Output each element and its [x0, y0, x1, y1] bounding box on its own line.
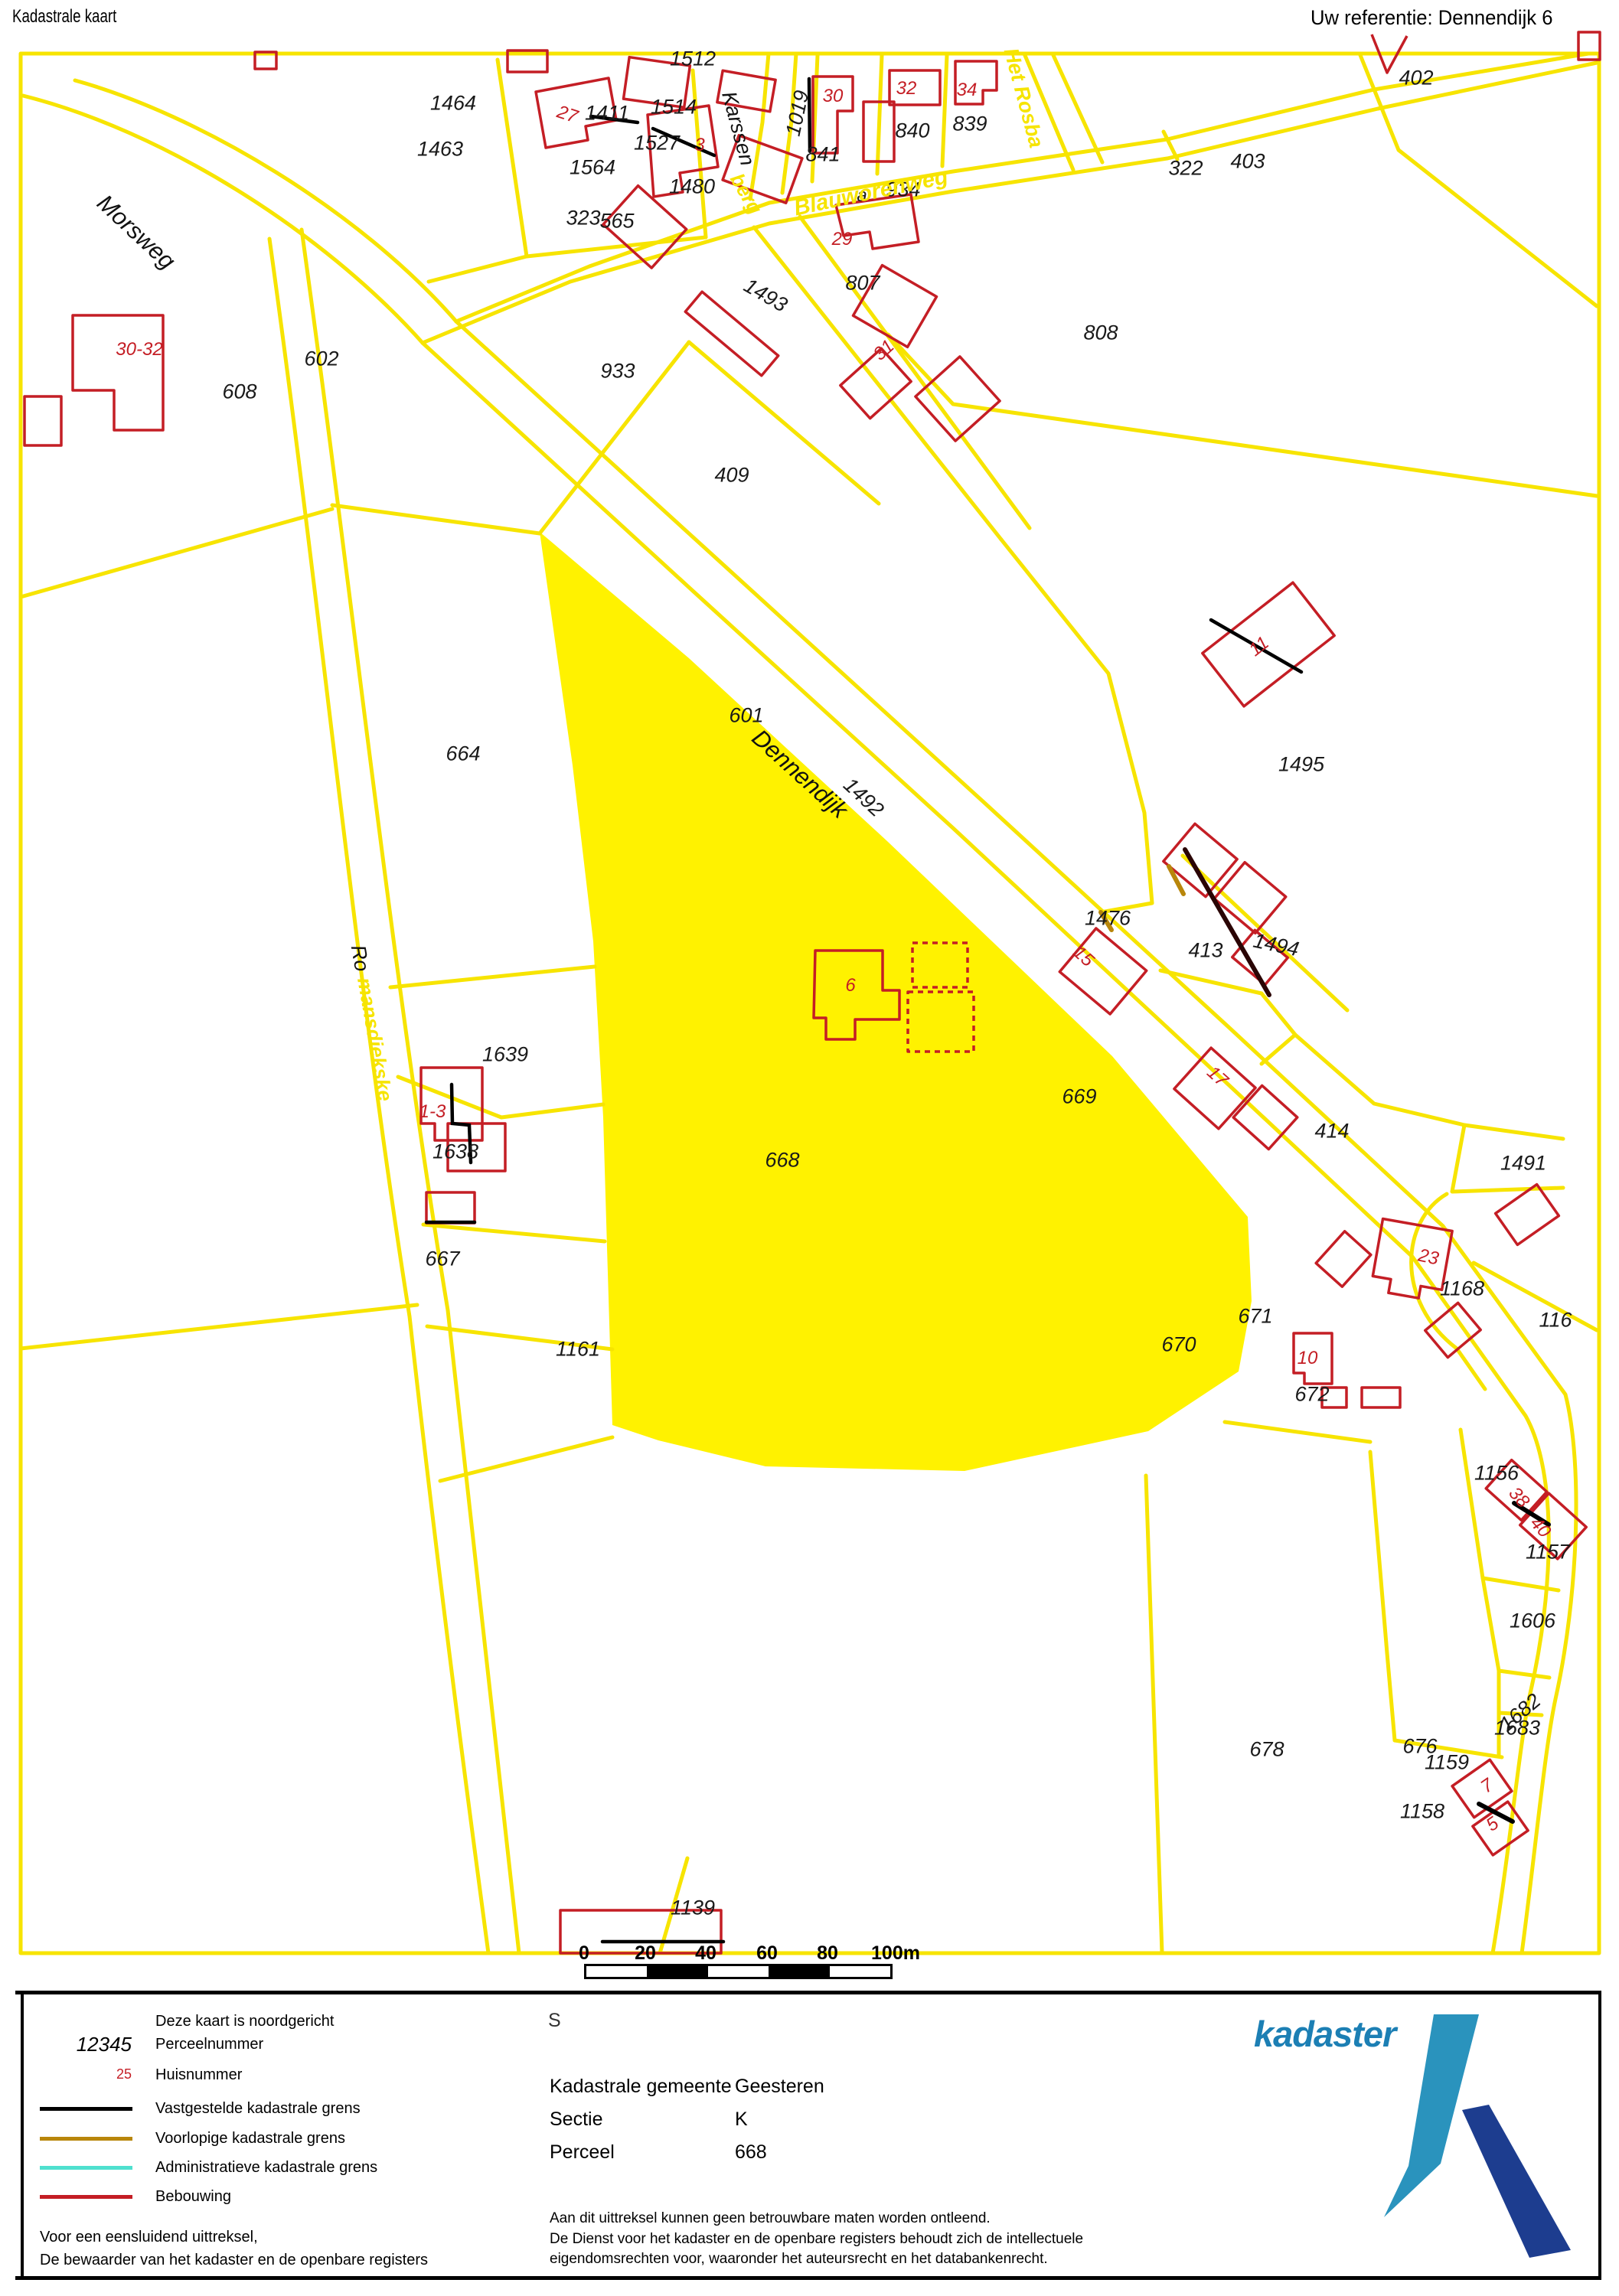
map-label-839: 839: [952, 114, 987, 135]
map-label-841: 841: [805, 145, 840, 165]
scale-segment: [586, 1966, 647, 1977]
disclaimer-line-2: De Dienst voor het kadaster en de openba…: [550, 2231, 1083, 2248]
map-label-1156: 1156: [1474, 1463, 1519, 1484]
legend-label-2: Vastgestelde kadastrale grens: [155, 2100, 361, 2118]
kadastrale-kaart-page: Kadastrale kaart Uw referentie: Dennendi…: [0, 0, 1619, 2296]
map-label-413: 413: [1188, 941, 1222, 961]
legend-label-0: Perceelnummer: [155, 2036, 263, 2053]
map-label-840: 840: [895, 121, 929, 142]
map-label-670: 670: [1161, 1335, 1196, 1355]
scale-segment: [769, 1966, 829, 1977]
map-label-1168: 1168: [1440, 1279, 1484, 1300]
legend-label-1: Huisnummer: [155, 2066, 242, 2084]
map-label-403: 403: [1230, 152, 1265, 172]
map-label-10: 10: [1297, 1349, 1318, 1368]
panel-border-right: [1598, 1991, 1601, 2280]
info-label-perceel: Perceel: [550, 2141, 615, 2164]
map-label-3: 3: [694, 136, 704, 155]
scale-tick-40: 40: [695, 1942, 716, 1965]
legend-sample-0: 12345: [40, 2033, 132, 2056]
map-label-671: 671: [1238, 1306, 1272, 1327]
map-label-23: 23: [1416, 1246, 1440, 1268]
map-label-672: 672: [1294, 1384, 1329, 1405]
map-label-664: 664: [446, 744, 480, 765]
scale-tick-80: 80: [817, 1942, 838, 1965]
info-value-sectie: K: [735, 2108, 748, 2131]
map-label-29: 29: [832, 230, 853, 249]
map-label-1480: 1480: [669, 177, 715, 197]
map-label-1639: 1639: [482, 1045, 528, 1065]
map-label-669: 669: [1062, 1087, 1096, 1107]
legend-line-4: [40, 2166, 132, 2170]
map-label-34: 34: [957, 81, 978, 99]
scale-bar-strip: [584, 1964, 893, 1979]
legend-line-3: [40, 2137, 132, 2141]
map-label-323: 323: [566, 208, 600, 229]
disclaimer-line-3: eigendomsrechten voor, waaronder het aut…: [550, 2251, 1048, 2268]
map-label-1683: 1683: [1494, 1718, 1540, 1739]
map-label-1411: 1411: [585, 103, 629, 124]
legend-label-3: Voorlopige kadastrale grens: [155, 2130, 345, 2148]
map-label-1476: 1476: [1085, 908, 1131, 929]
panel-border-left: [21, 1991, 24, 2280]
info-label-gemeente: Kadastrale gemeente: [550, 2076, 732, 2098]
map-label-601: 601: [729, 706, 763, 726]
map-label-322: 322: [1168, 158, 1203, 179]
legend-label-4: Administratieve kadastrale grens: [155, 2159, 377, 2177]
scale-bar: 020406080100m: [570, 1942, 922, 1981]
map-label-1527: 1527: [634, 133, 680, 154]
footer-line-2: De bewaarder van het kadaster en de open…: [40, 2252, 428, 2269]
map-label-676: 676: [1402, 1737, 1437, 1757]
map-label-1514: 1514: [651, 97, 697, 118]
map-label-409: 409: [714, 465, 749, 486]
scale-tick-0: 0: [579, 1942, 589, 1965]
partial-scale-text: S: [548, 2010, 561, 2032]
scale-tick-20: 20: [635, 1942, 656, 1965]
panel-border-bottom: [15, 2276, 1601, 2280]
info-label-sectie: Sectie: [550, 2108, 602, 2131]
kadaster-logo-text: kadaster: [1254, 2013, 1395, 2055]
map-label-667: 667: [425, 1249, 459, 1270]
scale-segment: [647, 1966, 707, 1977]
map-label-1139: 1139: [671, 1898, 715, 1919]
scale-tick-60: 60: [756, 1942, 778, 1965]
map-label-1638: 1638: [432, 1142, 478, 1163]
map-label-116: 116: [1539, 1310, 1572, 1331]
map-label-1495: 1495: [1278, 755, 1324, 775]
map-label-1564: 1564: [570, 158, 615, 178]
map-label-402: 402: [1399, 68, 1433, 89]
info-value-gemeente: Geesteren: [735, 2076, 824, 2098]
map-label-1463: 1463: [417, 139, 463, 160]
kadaster-logo-mark: [1378, 2007, 1577, 2259]
map-label-565: 565: [599, 211, 634, 232]
disclaimer-line-1: Aan dit uittreksel kunnen geen betrouwba…: [550, 2210, 991, 2227]
panel-border-top: [15, 1991, 1601, 1994]
map-label-1-3: 1-3: [419, 1103, 446, 1121]
map-label-6: 6: [845, 977, 855, 995]
map-label-1161: 1161: [556, 1339, 600, 1360]
map-label-1464: 1464: [430, 93, 476, 114]
parcel-668-highlight: [540, 532, 1252, 1471]
map-label-668: 668: [765, 1150, 799, 1171]
map-label-1512: 1512: [670, 49, 716, 70]
north-note: Deze kaart is noordgericht: [155, 2013, 334, 2030]
map-label-1606: 1606: [1510, 1611, 1555, 1632]
map-label-608: 608: [222, 382, 256, 403]
map-label-1157: 1157: [1526, 1542, 1570, 1563]
legend-line-5: [40, 2195, 132, 2199]
legend-line-2: [40, 2107, 132, 2111]
map-label-30-32: 30-32: [116, 341, 162, 359]
map-label-1491: 1491: [1500, 1153, 1546, 1174]
map-label-807: 807: [845, 273, 880, 294]
map-label-602: 602: [304, 349, 338, 370]
map-label-678: 678: [1249, 1740, 1284, 1760]
map-label-414: 414: [1314, 1121, 1349, 1142]
scale-tick-100m: 100m: [871, 1942, 920, 1965]
map-label-933: 933: [600, 361, 635, 382]
info-value-perceel: 668: [735, 2141, 767, 2164]
map-label-808: 808: [1083, 323, 1118, 344]
map-label-ro: Ro: [348, 944, 373, 974]
map-label-1158: 1158: [1400, 1802, 1444, 1822]
footer-line-1: Voor een eensluidend uittreksel,: [40, 2229, 258, 2246]
legend-label-5: Bebouwing: [155, 2188, 231, 2206]
scale-segment: [830, 1966, 890, 1977]
map-label-32: 32: [896, 80, 917, 98]
scale-segment: [708, 1966, 769, 1977]
legend-sample-1: 25: [40, 2066, 132, 2082]
map-label-30: 30: [823, 87, 844, 106]
